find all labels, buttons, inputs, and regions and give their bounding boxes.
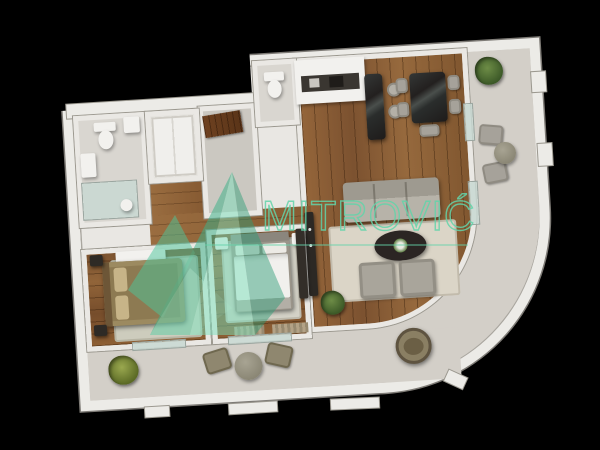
floor-plan-render: MITROVIĆ <box>0 0 600 450</box>
cooktop <box>329 76 344 88</box>
apartment-plan <box>60 38 560 412</box>
dining-chair <box>395 78 408 94</box>
pillow <box>235 244 260 255</box>
armchair <box>398 258 436 296</box>
duvet <box>234 253 291 300</box>
dining-table <box>409 71 448 123</box>
dining-chair <box>397 102 410 118</box>
nightstand <box>94 325 108 337</box>
dining-chair <box>449 99 462 115</box>
sofa <box>343 177 441 223</box>
wall-pillar <box>444 370 467 389</box>
closet-doors <box>151 115 197 177</box>
pillow <box>113 267 127 292</box>
washing-machine <box>123 116 140 133</box>
wall-pillar <box>531 71 546 92</box>
armchair <box>358 261 396 299</box>
wall-pillar <box>229 401 278 414</box>
dining-chair <box>419 124 440 137</box>
nightstand <box>89 255 103 267</box>
dining-chair <box>447 75 460 91</box>
wall-pillar <box>331 398 379 410</box>
wall-pillar <box>538 143 553 166</box>
pillow <box>262 242 287 253</box>
nightstand <box>215 237 229 250</box>
vanity-sink <box>80 153 96 178</box>
sink <box>309 78 320 88</box>
wall-pillar <box>145 406 170 417</box>
pillow <box>115 295 129 320</box>
